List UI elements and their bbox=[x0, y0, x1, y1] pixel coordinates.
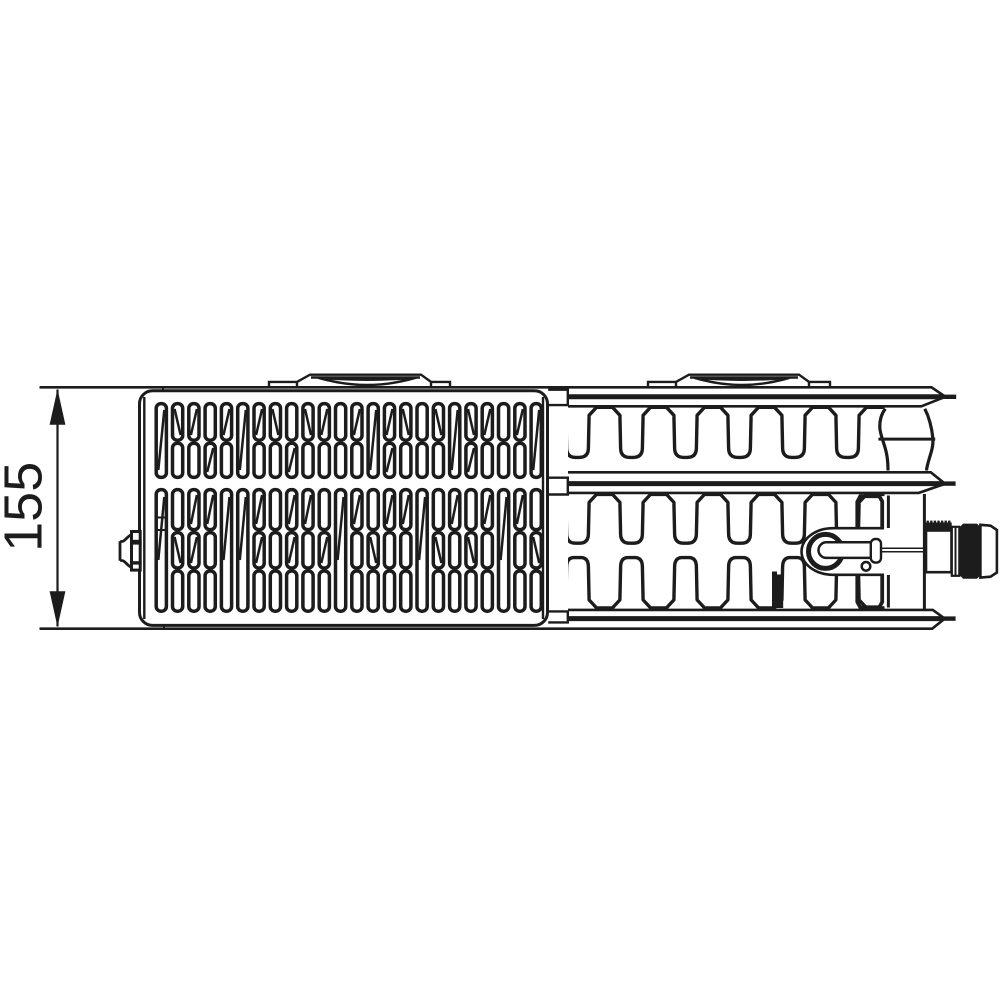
svg-text:155: 155 bbox=[0, 462, 54, 552]
